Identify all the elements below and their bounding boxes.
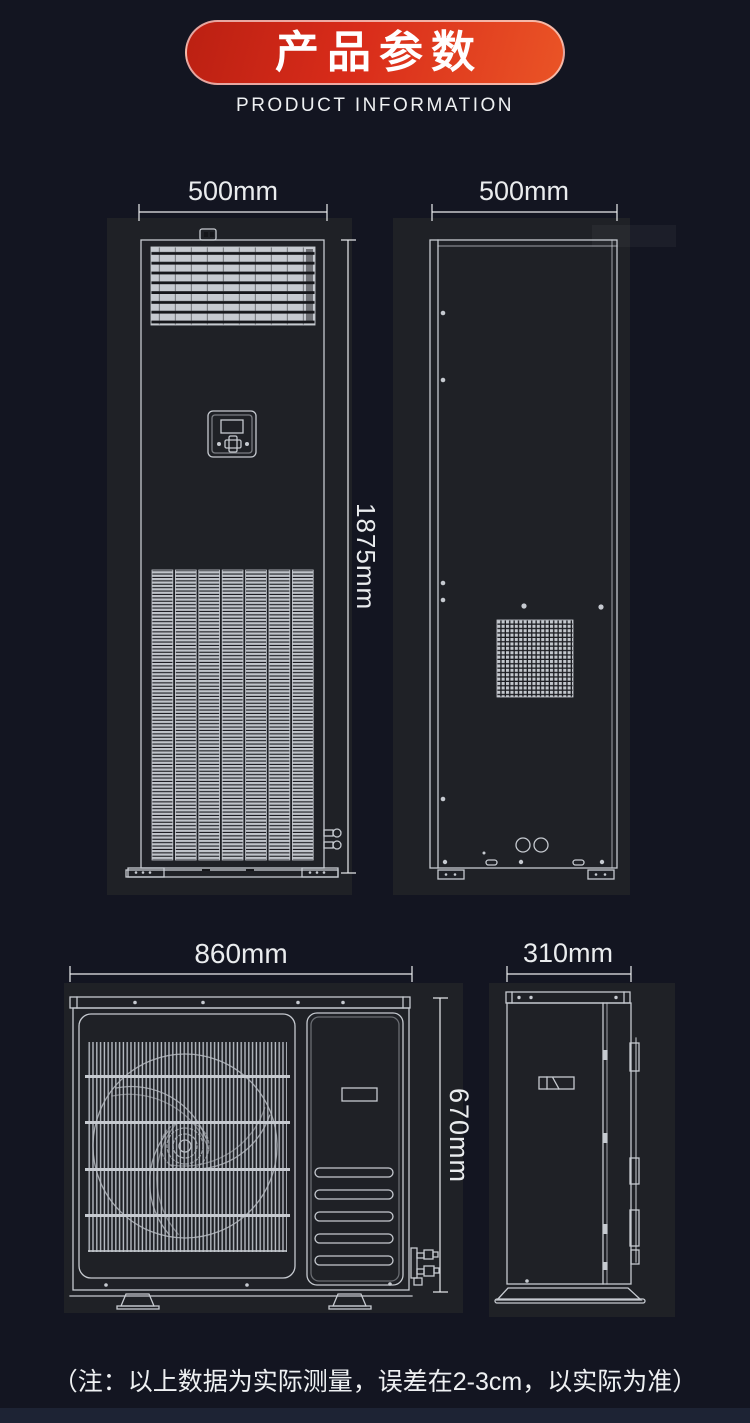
label-plate	[342, 1088, 377, 1101]
outdoor-side-depth-label: 310mm	[468, 938, 668, 969]
technical-drawings	[0, 0, 750, 1423]
indoor-unit-side-view	[430, 204, 617, 879]
indoor-side-feet	[438, 870, 614, 879]
outdoor-front-width-label: 860mm	[141, 938, 341, 970]
pipe-connectors	[324, 829, 341, 849]
handle	[539, 1077, 574, 1089]
fan-grille-lines	[88, 1042, 287, 1252]
outdoor-side-cabinet-outline	[507, 1003, 631, 1284]
indoor-side-cabinet-outline	[430, 240, 617, 868]
top-rail	[506, 992, 630, 1003]
measurement-note: （注：以上数据为实际测量，误差在2-3cm，以实际为准）	[0, 1362, 750, 1398]
indoor-height-label: 1875mm	[350, 503, 381, 610]
panel-screws	[441, 311, 604, 802]
air-outlet-louvers	[151, 247, 315, 325]
indoor-side-depth-label: 500mm	[424, 176, 624, 207]
indoor-front-base-feet	[126, 868, 338, 877]
outdoor-unit-front-view	[70, 966, 448, 1309]
service-panel	[307, 1013, 403, 1285]
outdoor-side-foot	[495, 1288, 645, 1303]
return-air-grille	[152, 570, 313, 860]
outdoor-height-label: 670mm	[443, 1088, 474, 1183]
product-parameters-section: 产品参数 PRODUCT INFORMATION	[0, 0, 750, 1423]
vent-mesh	[497, 620, 573, 697]
refrigerant-valves	[411, 1248, 439, 1285]
top-bracket	[200, 229, 216, 240]
indoor-unit-front-view	[126, 204, 356, 877]
top-rail	[70, 997, 410, 1008]
vent-slats	[315, 1168, 393, 1265]
display-screen	[221, 420, 243, 433]
outdoor-unit-side-view	[495, 966, 645, 1303]
pipe-holes	[443, 838, 604, 865]
indoor-front-width-label: 500mm	[133, 176, 333, 207]
control-panel	[208, 411, 256, 457]
outdoor-front-base-feet	[70, 1294, 412, 1309]
